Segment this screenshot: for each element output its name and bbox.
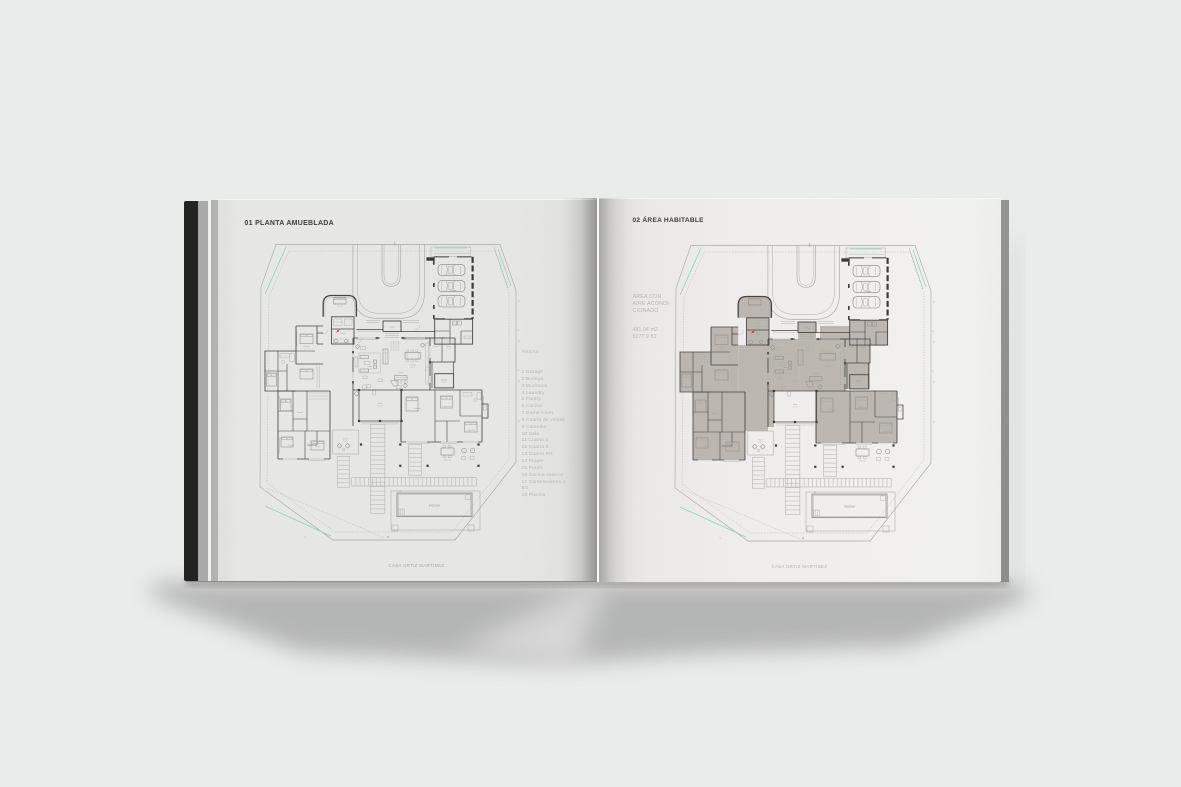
svg-text:Cuarto 3: Cuarto 3	[703, 445, 710, 448]
svg-text:7 x 10: 7 x 10	[861, 350, 865, 352]
svg-text:Deck: Deck	[793, 404, 797, 406]
svg-text:Cocina: Cocina	[398, 372, 403, 374]
svg-text:30 x 20: 30 x 20	[793, 407, 798, 409]
svg-text:Pantry: Pantry	[446, 345, 451, 348]
svg-text:Deck: Deck	[378, 403, 382, 405]
svg-text:Cuarto 1: Cuarto 1	[304, 345, 311, 348]
svg-text:Prayer: Prayer	[316, 445, 321, 448]
svg-text:18: 18	[719, 538, 721, 540]
svg-text:Cuarto de: Cuarto de	[828, 408, 835, 411]
svg-text:9 x 9: 9 x 9	[442, 382, 445, 384]
svg-text:20 x 20: 20 x 20	[783, 370, 788, 372]
svg-text:7 x 10: 7 x 10	[446, 349, 450, 351]
svg-text:Pantry: Pantry	[861, 346, 866, 349]
svg-text:24: 24	[517, 330, 519, 332]
svg-text:Bodega: Bodega	[856, 381, 862, 383]
svg-text:Cuarto PR: Cuarto PR	[467, 429, 475, 432]
svg-text:Cocina 2: Cocina 2	[848, 347, 854, 349]
svg-text:Cocina 2: Cocina 2	[433, 346, 439, 348]
svg-text:Cuarto 3: Cuarto 3	[288, 444, 295, 447]
svg-text:31: 31	[517, 370, 519, 372]
svg-text:20 x 20: 20 x 20	[368, 369, 373, 371]
svg-text:Lobby: Lobby	[805, 328, 810, 330]
svg-text:13 x 12: 13 x 12	[305, 348, 310, 350]
svg-text:Lobby: Lobby	[390, 327, 395, 329]
svg-text:31: 31	[932, 371, 934, 373]
svg-text:30 x 20: 30 x 20	[378, 406, 383, 408]
svg-text:Game room: Game room	[443, 405, 453, 408]
svg-text:16 x 10: 16 x 10	[410, 367, 415, 369]
svg-text:Sala: Sala	[783, 367, 787, 369]
svg-text:Garage: Garage	[450, 289, 456, 292]
svg-text:9 x 9: 9 x 9	[857, 383, 860, 385]
svg-text:Com. ext.: Com. ext.	[859, 460, 866, 463]
svg-text:24: 24	[932, 331, 934, 333]
svg-text:Porch: Porch	[343, 439, 348, 441]
svg-text:Garage: Garage	[865, 290, 871, 293]
svg-text:Porch: Porch	[758, 440, 763, 442]
svg-text:PISCINA: PISCINA	[844, 504, 855, 508]
svg-text:Game room: Game room	[858, 406, 868, 409]
svg-text:17 x 17: 17 x 17	[752, 307, 758, 309]
svg-text:Comedor: Comedor	[409, 364, 416, 367]
svg-text:16 x 16: 16 x 16	[758, 442, 763, 444]
svg-text:PISCINA: PISCINA	[429, 503, 440, 507]
svg-text:Closet: Closet	[755, 333, 760, 336]
svg-text:Cuarto de: Cuarto de	[413, 407, 420, 410]
svg-text:Closet: Closet	[340, 332, 345, 335]
svg-text:Cuarto 2: Cuarto 2	[297, 411, 303, 414]
svg-text:Bodega: Bodega	[441, 380, 447, 382]
svg-text:Comedor: Comedor	[824, 365, 831, 368]
svg-text:13 x 12: 13 x 12	[720, 349, 725, 351]
svg-text:Prayer: Prayer	[731, 446, 736, 449]
svg-text:Sala: Sala	[368, 366, 372, 368]
svg-text:18: 18	[304, 537, 306, 539]
svg-text:17 x 17: 17 x 17	[337, 306, 343, 308]
svg-text:Com. ext.: Com. ext.	[444, 459, 451, 462]
svg-text:Cuarto 1: Cuarto 1	[719, 346, 726, 349]
svg-text:16 x 10: 16 x 10	[825, 368, 830, 370]
svg-text:Cocina: Cocina	[813, 373, 818, 375]
svg-text:16 x 16: 16 x 16	[343, 441, 348, 443]
